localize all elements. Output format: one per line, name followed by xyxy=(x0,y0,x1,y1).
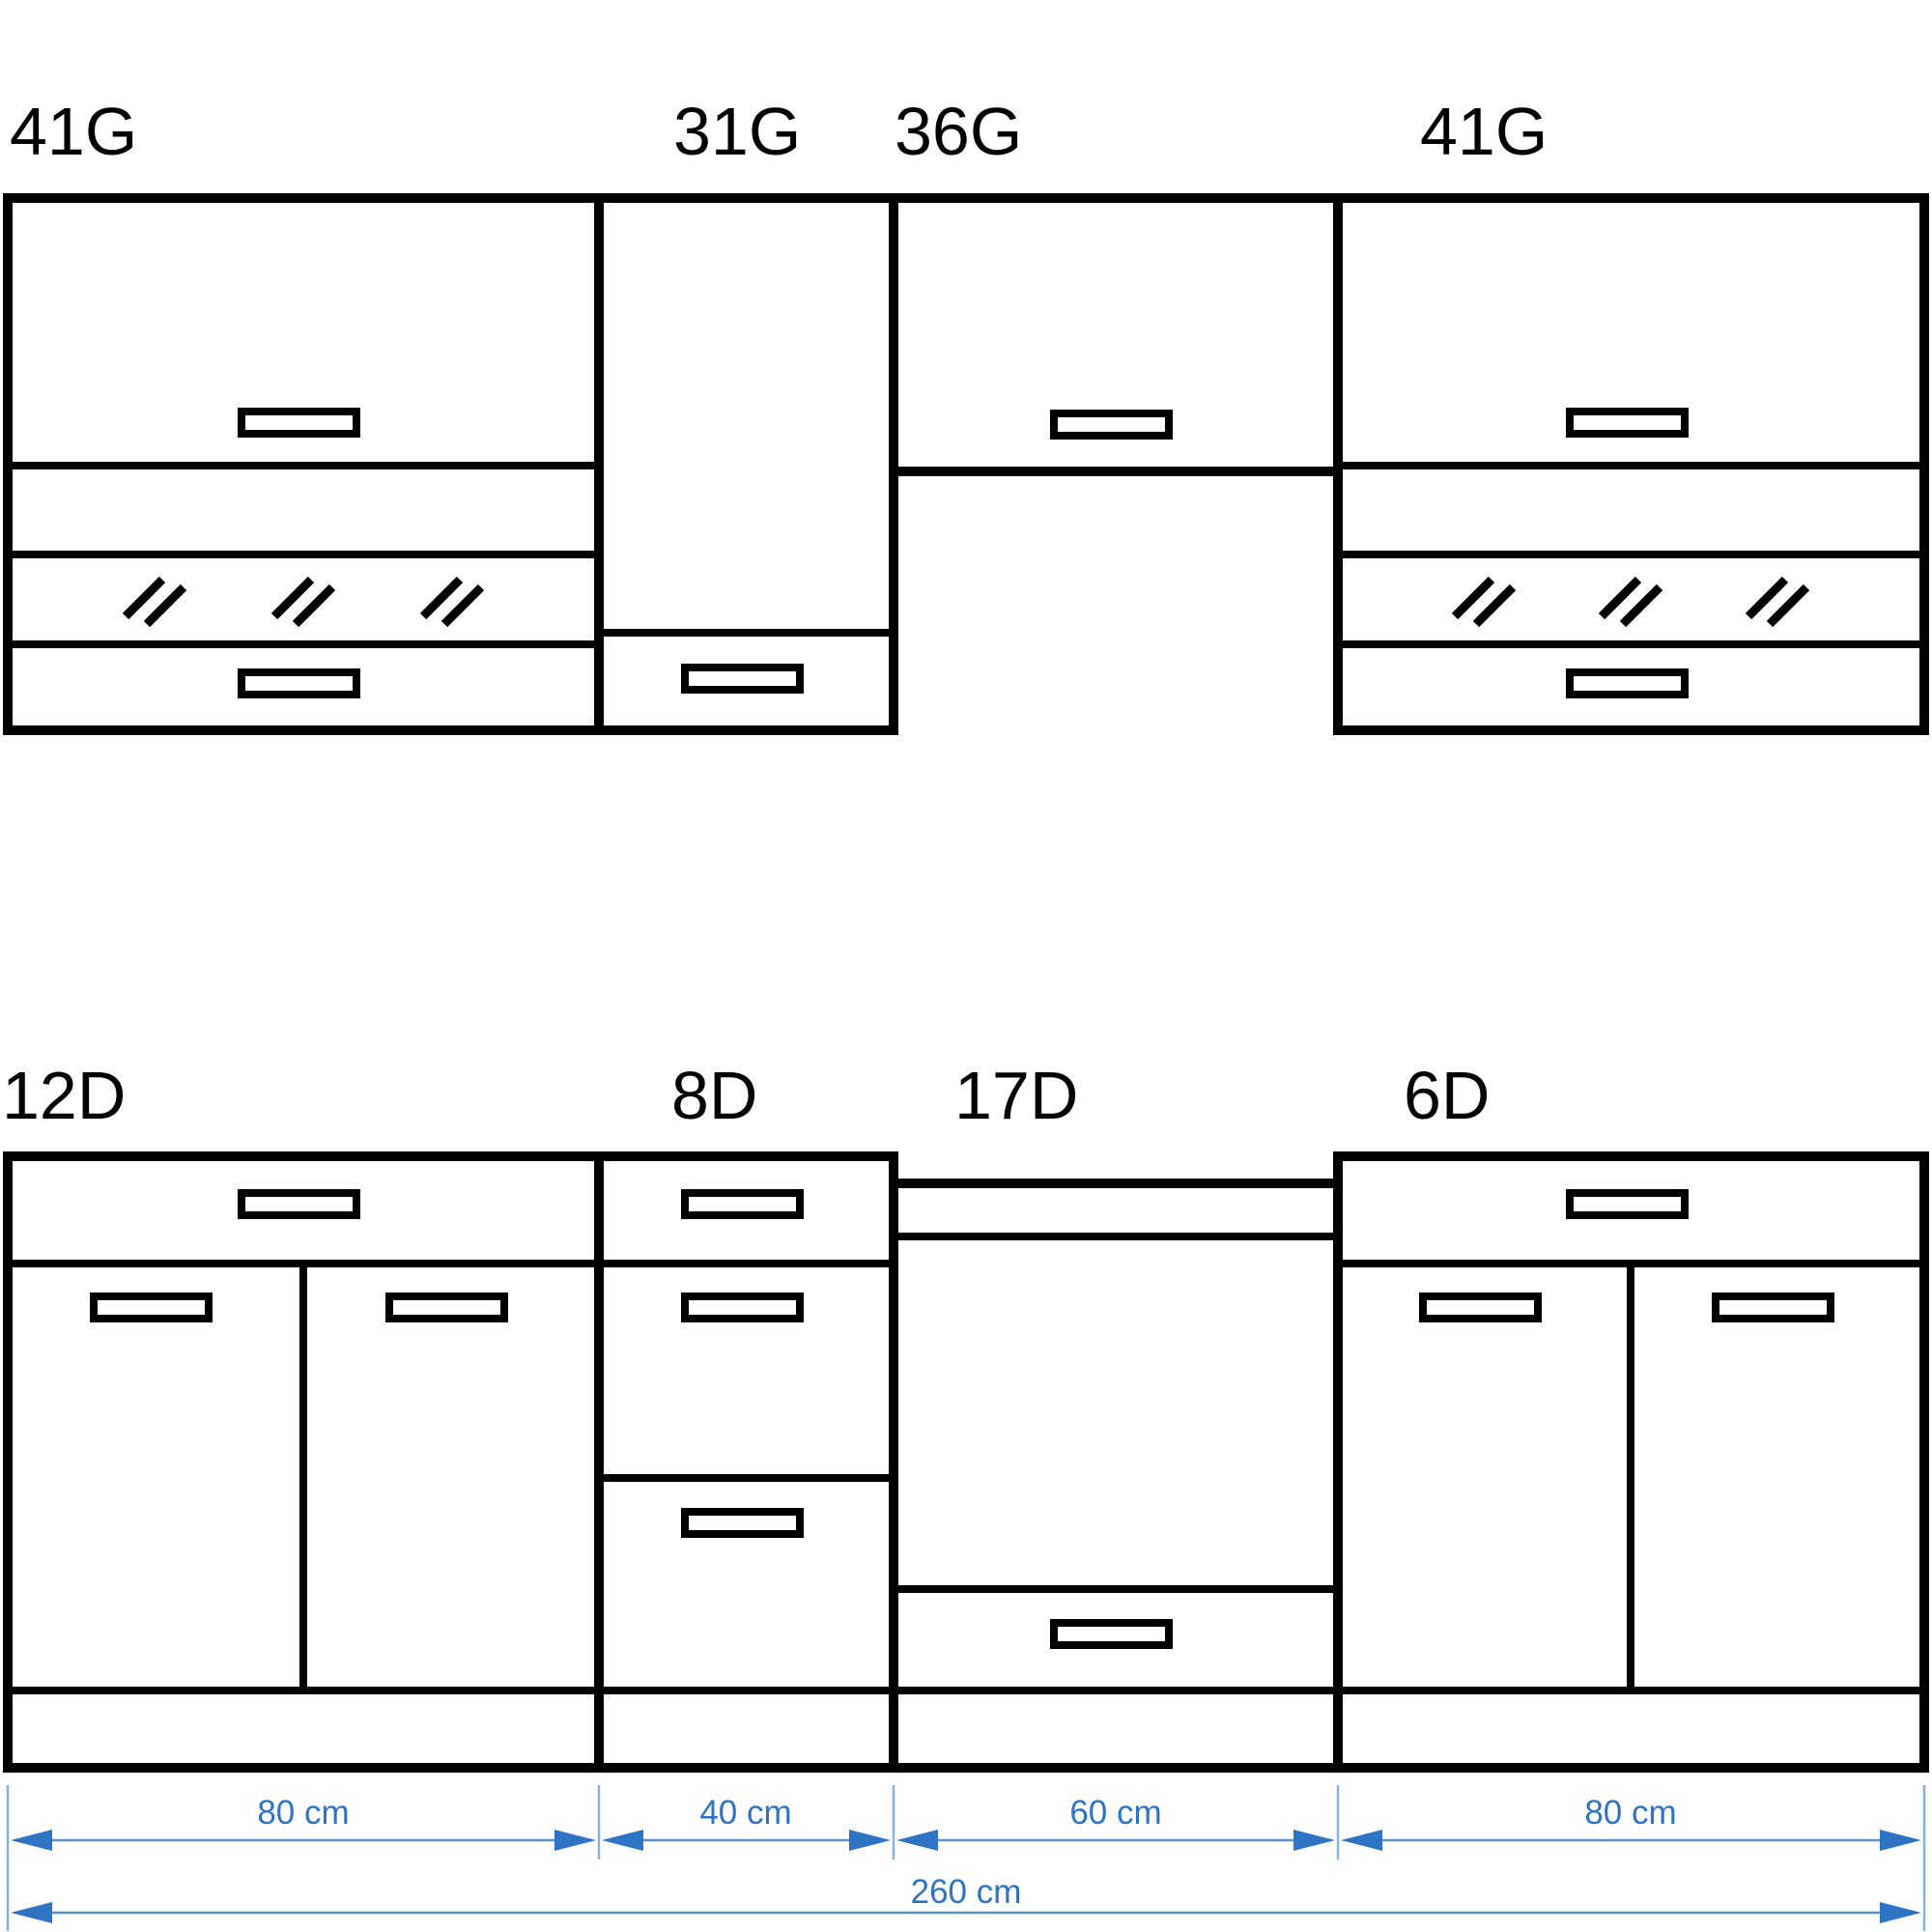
drawer-handle xyxy=(1570,1193,1685,1215)
dimension-line-segments xyxy=(11,1830,1921,1851)
arrow-right-icon xyxy=(849,1830,891,1851)
door-handle xyxy=(241,412,356,434)
drawer1-handle xyxy=(685,1193,800,1215)
wall-units-row xyxy=(8,198,1924,730)
wall-cabinet-41g-b xyxy=(1338,198,1924,730)
wall-cabinet-41g-a xyxy=(8,198,599,730)
dim-label-80cm-right: 80 cm xyxy=(1584,1794,1676,1832)
arrow-right-icon xyxy=(1880,1902,1921,1923)
dimension-annotations: 80 cm 40 cm 60 cm 80 cm 260 cm xyxy=(8,1785,1924,1931)
arrow-right-icon xyxy=(1293,1830,1335,1851)
base-cabinet-8d xyxy=(599,1156,894,1768)
base-cabinet-6d xyxy=(1338,1156,1924,1768)
drawer3-handle xyxy=(685,1512,800,1534)
wall-cabinet-36g xyxy=(894,198,1338,471)
arrow-left-icon xyxy=(11,1902,52,1923)
left-door-handle xyxy=(1423,1296,1538,1319)
label-base-unit-6d: 6D xyxy=(1404,1058,1490,1133)
wall-cabinet-31g xyxy=(599,198,894,730)
cabinet-outline xyxy=(599,1156,894,1768)
drawer2-handle xyxy=(685,1296,800,1319)
dim-label-80cm-left: 80 cm xyxy=(257,1794,349,1832)
arrow-right-icon xyxy=(554,1830,596,1851)
door-handle xyxy=(1054,413,1169,436)
right-door-handle xyxy=(1716,1296,1831,1319)
door-handle xyxy=(1570,412,1685,434)
kitchen-cabinet-elevation: 41G 31G 36G 41G 12D 8D 17D 6D xyxy=(0,0,1932,1932)
cabinet-outline xyxy=(599,198,894,730)
arrow-right-icon xyxy=(1880,1830,1921,1851)
drawer-handle xyxy=(685,668,800,690)
dim-label-40cm: 40 cm xyxy=(699,1794,791,1832)
cabinet-elevation-drawing: 41G 31G 36G 41G 12D 8D 17D 6D xyxy=(0,0,1932,1932)
drawer-handle xyxy=(241,1193,356,1215)
label-wall-unit-41g-b: 41G xyxy=(1420,94,1548,169)
arrow-left-icon xyxy=(1341,1830,1382,1851)
arrow-left-icon xyxy=(11,1830,52,1851)
arrow-left-icon xyxy=(896,1830,938,1851)
cabinet-outline xyxy=(894,1183,1338,1768)
right-door-handle xyxy=(389,1296,504,1319)
dim-label-total-260cm: 260 cm xyxy=(911,1873,1022,1911)
label-base-unit-8d: 8D xyxy=(671,1058,757,1133)
left-door-handle xyxy=(94,1296,209,1319)
dim-label-60cm: 60 cm xyxy=(1069,1794,1161,1832)
drawer-handle xyxy=(1570,672,1685,695)
label-wall-unit-41g-a: 41G xyxy=(10,94,137,169)
label-wall-unit-31g: 31G xyxy=(673,94,801,169)
label-base-unit-12d: 12D xyxy=(2,1058,126,1133)
arrow-left-icon xyxy=(602,1830,643,1851)
base-units-row xyxy=(8,1156,1924,1768)
label-wall-unit-36g: 36G xyxy=(895,94,1022,169)
label-base-unit-17d: 17D xyxy=(954,1058,1078,1133)
base-cabinet-17d xyxy=(894,1183,1338,1768)
drawer-handle xyxy=(1054,1623,1169,1645)
drawer-handle xyxy=(241,672,356,695)
base-cabinet-12d xyxy=(8,1156,599,1768)
